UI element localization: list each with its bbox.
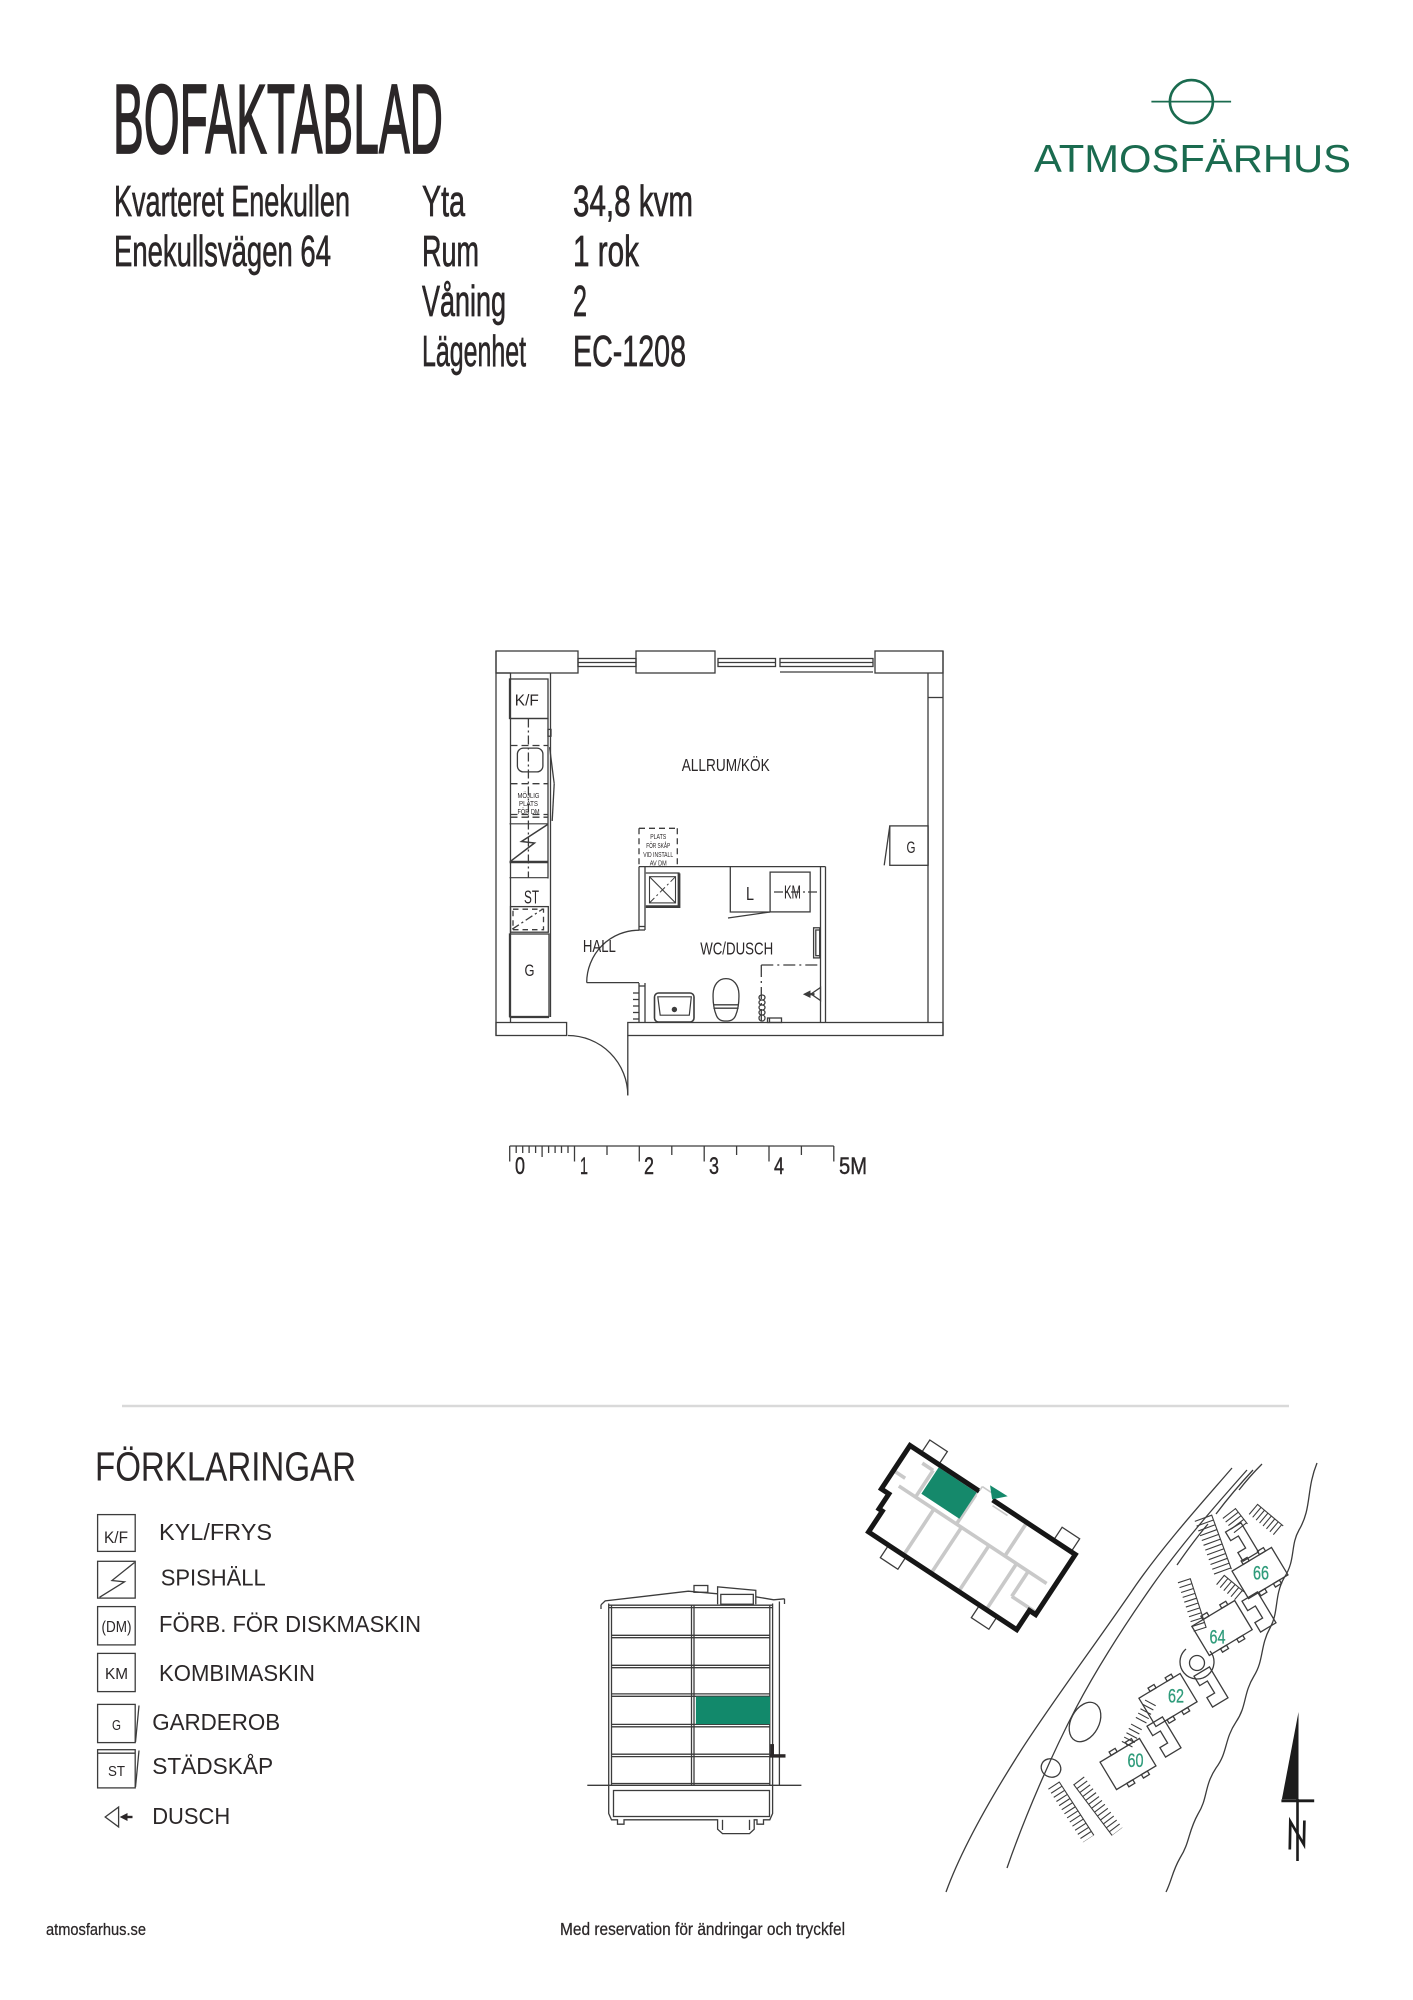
svg-text:L: L	[746, 884, 754, 904]
svg-text:1: 1	[580, 1153, 588, 1180]
svg-text:34,8 kvm: 34,8 kvm	[573, 177, 693, 226]
svg-text:5M: 5M	[839, 1153, 867, 1180]
svg-text:KM: KM	[784, 883, 801, 903]
svg-text:K/F: K/F	[104, 1528, 128, 1547]
svg-text:KOMBIMASKIN: KOMBIMASKIN	[159, 1660, 315, 1686]
svg-text:FÖRB. FÖR DISKMASKIN: FÖRB. FÖR DISKMASKIN	[159, 1611, 421, 1637]
svg-text:KYL/FRYS: KYL/FRYS	[159, 1519, 272, 1545]
svg-text:ATMOSFÄRHUS: ATMOSFÄRHUS	[1034, 138, 1351, 181]
svg-text:FÖRKLARINGAR: FÖRKLARINGAR	[95, 1444, 356, 1490]
svg-text:3: 3	[709, 1153, 719, 1180]
svg-text:Våning: Våning	[422, 277, 506, 326]
svg-text:Med reservation för ändringar: Med reservation för ändringar och tryckf…	[560, 1919, 845, 1939]
svg-text:atmosfarhus.se: atmosfarhus.se	[46, 1921, 146, 1939]
svg-text:60: 60	[1128, 1751, 1144, 1772]
svg-text:ST: ST	[524, 887, 539, 908]
svg-text:2: 2	[644, 1153, 654, 1180]
svg-text:K/F: K/F	[515, 693, 539, 710]
svg-text:AV DM: AV DM	[650, 859, 667, 868]
svg-text:0: 0	[515, 1153, 525, 1180]
svg-text:G: G	[112, 1717, 121, 1734]
svg-text:BOFAKTABLAD: BOFAKTABLAD	[113, 64, 443, 174]
svg-text:SPISHÄLL: SPISHÄLL	[161, 1564, 266, 1590]
svg-text:DUSCH: DUSCH	[152, 1803, 230, 1829]
svg-text:Yta: Yta	[422, 177, 465, 226]
svg-text:STÄDSKÅP: STÄDSKÅP	[152, 1752, 273, 1779]
svg-text:2: 2	[573, 277, 587, 326]
svg-text:FÖR SKÅP: FÖR SKÅP	[646, 841, 670, 850]
svg-text:G: G	[525, 961, 535, 980]
svg-text:EC-1208: EC-1208	[573, 327, 686, 376]
svg-text:Enekullsvägen 64: Enekullsvägen 64	[114, 227, 331, 276]
svg-text:(DM): (DM)	[102, 1619, 132, 1636]
svg-text:ST: ST	[108, 1763, 125, 1780]
svg-text:62: 62	[1168, 1687, 1184, 1708]
svg-text:ALLRUM/KÖK: ALLRUM/KÖK	[682, 755, 770, 775]
svg-text:HALL: HALL	[583, 936, 616, 956]
svg-text:GARDEROB: GARDEROB	[152, 1709, 280, 1735]
svg-text:KM: KM	[105, 1666, 128, 1683]
svg-text:FÖR DM: FÖR DM	[518, 807, 540, 816]
svg-text:Kvarteret Enekullen: Kvarteret Enekullen	[114, 177, 350, 226]
svg-text:66: 66	[1253, 1564, 1269, 1585]
svg-text:PLATS: PLATS	[650, 832, 666, 841]
svg-text:4: 4	[774, 1153, 784, 1180]
svg-text:Rum: Rum	[422, 227, 479, 276]
svg-text:G: G	[907, 838, 916, 857]
svg-text:1 rok: 1 rok	[573, 227, 640, 276]
svg-text:Lägenhet: Lägenhet	[422, 327, 526, 376]
svg-text:64: 64	[1210, 1628, 1226, 1649]
svg-text:WC/DUSCH: WC/DUSCH	[700, 939, 773, 959]
